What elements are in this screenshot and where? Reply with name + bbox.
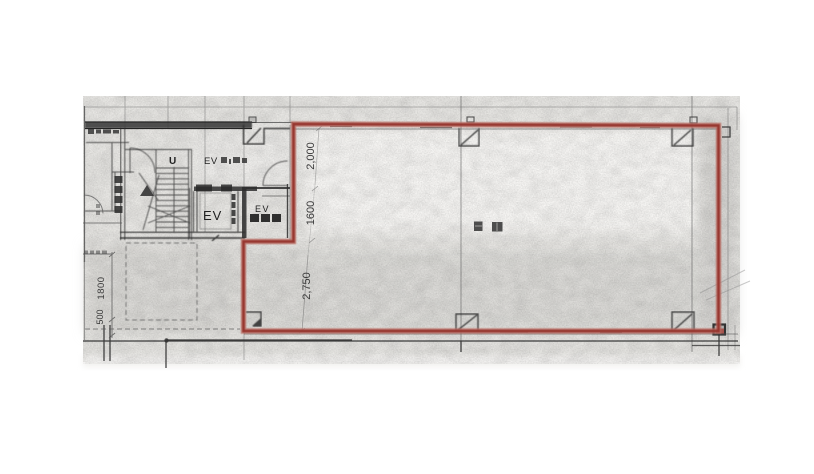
svg-text:EV: EV <box>203 208 222 223</box>
svg-text:2,750: 2,750 <box>301 272 313 300</box>
svg-text:1800: 1800 <box>96 276 107 299</box>
svg-text:EV: EV <box>204 156 218 167</box>
svg-text:U: U <box>169 156 176 167</box>
svg-text:500: 500 <box>95 309 105 324</box>
svg-text:2,000: 2,000 <box>305 142 317 170</box>
svg-text:EV: EV <box>255 204 270 214</box>
svg-text:1600: 1600 <box>305 201 317 225</box>
